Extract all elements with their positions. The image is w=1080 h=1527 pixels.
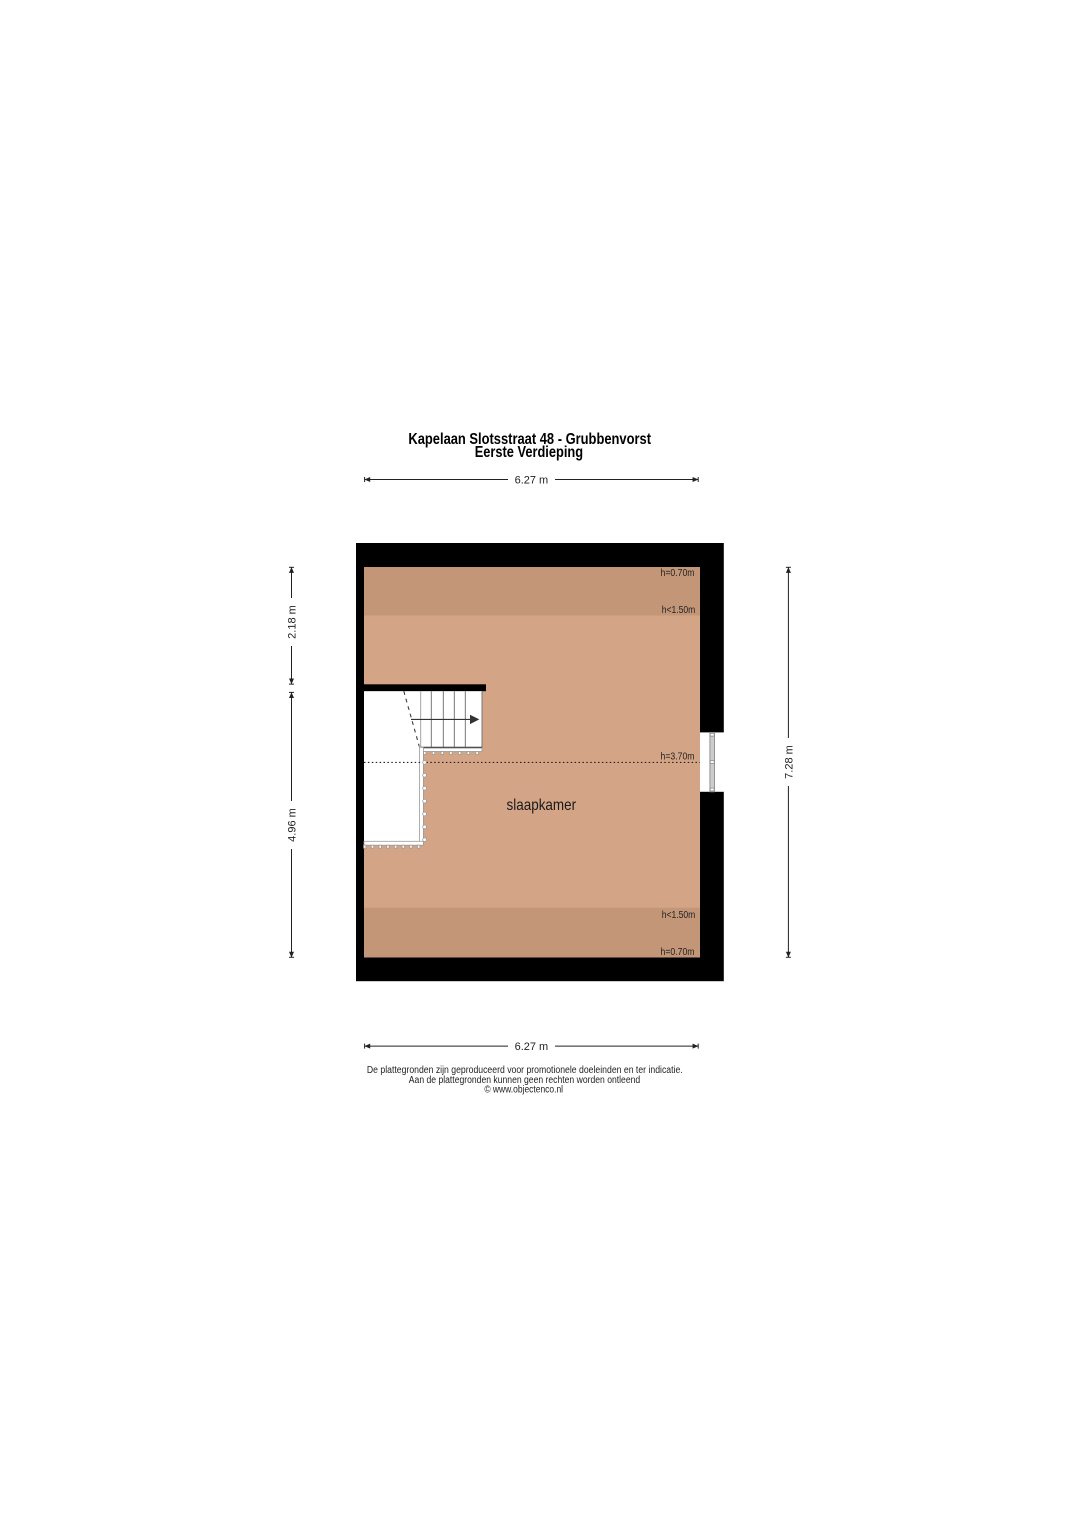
svg-text:h=0.70m: h=0.70m [661,947,695,958]
svg-text:slaapkamer: slaapkamer [507,797,577,814]
svg-text:© www.objectenco.nl: © www.objectenco.nl [484,1085,563,1096]
svg-text:Eerste Verdieping: Eerste Verdieping [475,444,583,461]
svg-text:7.28 m: 7.28 m [783,745,795,779]
svg-text:h<1.50m: h<1.50m [662,605,696,616]
svg-text:h=3.70m: h=3.70m [661,752,695,763]
svg-text:h=0.70m: h=0.70m [661,568,695,579]
svg-text:6.27 m: 6.27 m [515,1041,549,1053]
svg-text:6.27 m: 6.27 m [515,474,549,486]
svg-text:2.18 m: 2.18 m [287,605,299,639]
svg-text:4.96 m: 4.96 m [287,808,299,842]
svg-text:h<1.50m: h<1.50m [662,910,696,921]
